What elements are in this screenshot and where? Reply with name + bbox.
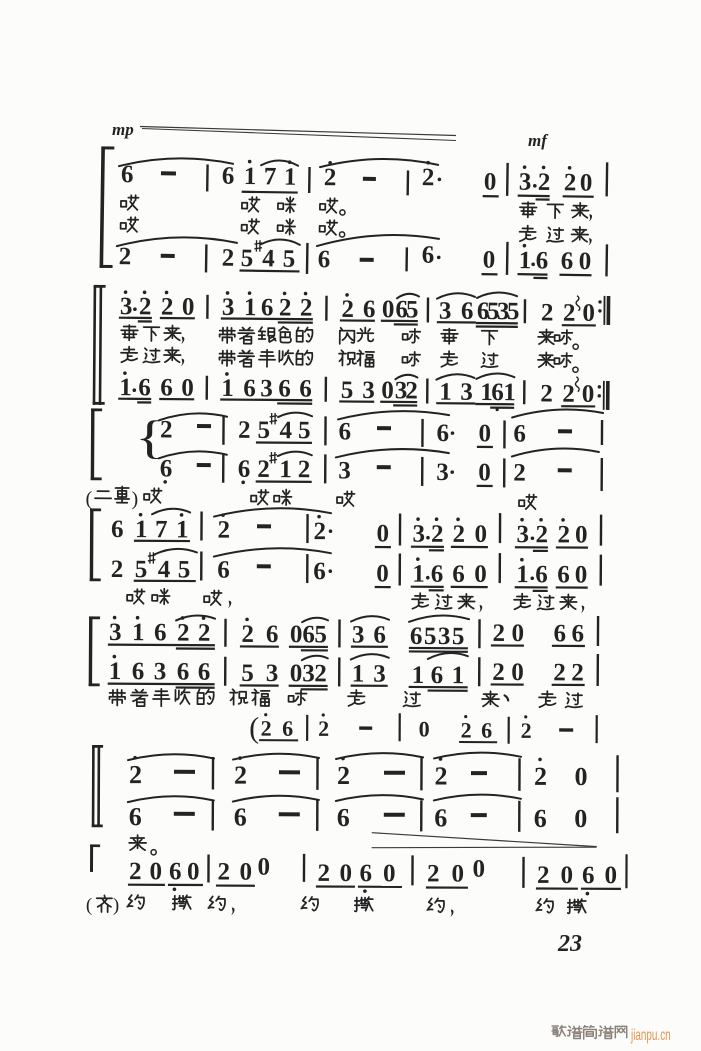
svg-text:6: 6 (410, 623, 423, 650)
svg-text:2: 2 (535, 521, 548, 548)
svg-text:2: 2 (492, 620, 505, 647)
svg-text:1: 1 (412, 561, 425, 588)
svg-text:2: 2 (217, 517, 230, 544)
svg-text:0: 0 (483, 247, 496, 274)
svg-text:2: 2 (534, 762, 547, 791)
svg-text:2: 2 (313, 518, 326, 545)
svg-text:2: 2 (234, 761, 247, 790)
svg-text:jianpu.cn: jianpu.cn (630, 1026, 670, 1044)
svg-text:1: 1 (135, 516, 148, 543)
svg-text:0: 0 (474, 561, 487, 588)
svg-text:6: 6 (198, 659, 211, 686)
svg-text:): ) (132, 488, 139, 510)
svg-text:6: 6 (111, 516, 124, 543)
svg-text:0: 0 (257, 854, 270, 881)
svg-text:5: 5 (507, 298, 520, 325)
svg-text:0: 0 (474, 521, 487, 548)
svg-text:2: 2 (129, 858, 142, 885)
svg-text:6: 6 (169, 858, 182, 885)
svg-text:4: 4 (279, 417, 292, 444)
svg-text:6: 6 (313, 558, 326, 585)
svg-text:0: 0 (182, 294, 195, 321)
svg-text:7: 7 (264, 163, 277, 190)
svg-text:5: 5 (406, 296, 419, 323)
svg-text:0: 0 (381, 377, 394, 404)
svg-text:6: 6 (160, 374, 173, 401)
svg-text:5: 5 (241, 660, 254, 687)
svg-text:2: 2 (337, 761, 350, 790)
svg-text:0: 0 (376, 520, 389, 547)
svg-text:2: 2 (198, 620, 211, 647)
svg-text:(: ( (249, 712, 259, 745)
svg-text:6: 6 (434, 803, 447, 832)
svg-text:23: 23 (557, 931, 582, 957)
svg-text:3: 3 (338, 457, 351, 484)
svg-text:5: 5 (341, 377, 354, 404)
svg-text:5: 5 (241, 245, 254, 272)
svg-text:4: 4 (262, 245, 275, 272)
svg-text:2: 2 (161, 293, 174, 320)
svg-text:3: 3 (120, 293, 133, 320)
svg-text:6: 6 (238, 456, 251, 483)
svg-text:2: 2 (431, 521, 444, 548)
svg-text:2: 2 (557, 521, 570, 548)
svg-text:0: 0 (511, 659, 524, 686)
svg-text:2: 2 (422, 164, 435, 191)
svg-text:3: 3 (460, 379, 473, 406)
svg-text:4: 4 (158, 556, 171, 583)
svg-text:3: 3 (412, 521, 425, 548)
svg-text:2: 2 (139, 293, 152, 320)
svg-text:6: 6 (461, 298, 474, 325)
svg-text:3: 3 (109, 619, 122, 646)
svg-text:6: 6 (582, 862, 595, 889)
svg-text:0: 0 (290, 660, 303, 687)
svg-text:1: 1 (279, 456, 292, 483)
svg-text:1: 1 (452, 662, 465, 689)
svg-text:2: 2 (405, 377, 418, 404)
svg-text:0: 0 (604, 862, 617, 889)
svg-text:3: 3 (362, 377, 375, 404)
svg-text:6: 6 (422, 242, 435, 269)
svg-text:0: 0 (511, 620, 524, 647)
svg-text:6: 6 (282, 716, 293, 741)
svg-text:6: 6 (373, 622, 386, 649)
svg-text:6: 6 (222, 163, 235, 190)
svg-text:1: 1 (176, 516, 189, 543)
svg-text:6: 6 (317, 246, 330, 273)
svg-text:3: 3 (222, 294, 235, 321)
svg-text:0: 0 (575, 561, 588, 588)
svg-text:6: 6 (535, 247, 548, 274)
svg-text:0: 0 (574, 804, 587, 833)
svg-text:3: 3 (260, 375, 273, 402)
svg-text:6: 6 (513, 420, 526, 447)
svg-text:3: 3 (439, 298, 452, 325)
svg-text:3: 3 (154, 658, 167, 685)
svg-text:1: 1 (244, 163, 257, 190)
svg-text:0: 0 (560, 862, 573, 889)
svg-text:2: 2 (521, 718, 532, 743)
svg-text:2: 2 (119, 243, 132, 270)
svg-text:0: 0 (478, 459, 491, 486)
svg-text:6: 6 (452, 561, 465, 588)
svg-text:2: 2 (540, 380, 553, 407)
svg-text:1: 1 (412, 662, 425, 689)
svg-text:2: 2 (261, 716, 272, 741)
svg-text:6: 6 (431, 662, 444, 689)
svg-text:2: 2 (341, 296, 354, 323)
svg-text:5: 5 (452, 623, 465, 650)
svg-text:2: 2 (562, 381, 575, 408)
svg-text:0: 0 (149, 858, 162, 885)
svg-text:2: 2 (513, 459, 526, 486)
svg-text:6: 6 (431, 561, 444, 588)
svg-text:7: 7 (155, 516, 168, 543)
svg-text:0: 0 (382, 296, 395, 323)
svg-text:): ) (113, 895, 119, 916)
svg-text:5: 5 (298, 417, 311, 444)
svg-text:6: 6 (491, 379, 504, 406)
svg-text:6: 6 (154, 619, 167, 646)
svg-text:2: 2 (317, 860, 330, 887)
svg-text:3: 3 (352, 622, 365, 649)
svg-text:2: 2 (222, 245, 235, 272)
svg-text:1: 1 (352, 661, 365, 688)
svg-text:1: 1 (132, 619, 145, 646)
svg-text:1: 1 (119, 374, 132, 401)
svg-text:1: 1 (244, 294, 257, 321)
svg-text:0: 0 (451, 861, 464, 888)
svg-text:6: 6 (337, 803, 350, 832)
svg-text:2: 2 (257, 456, 270, 483)
svg-text:2: 2 (279, 294, 292, 321)
svg-text:1: 1 (439, 379, 452, 406)
svg-text:1: 1 (284, 164, 297, 191)
svg-text:3: 3 (266, 660, 279, 687)
svg-text:0: 0 (575, 521, 588, 548)
svg-text:2: 2 (563, 300, 576, 327)
svg-text:6: 6 (217, 557, 230, 584)
svg-text:0: 0 (339, 860, 352, 887)
svg-text:2: 2 (241, 621, 254, 648)
svg-text:2: 2 (217, 858, 230, 885)
svg-text:6: 6 (234, 803, 247, 832)
svg-text:1: 1 (503, 379, 516, 406)
svg-text:2: 2 (314, 660, 327, 687)
svg-text:3: 3 (302, 660, 315, 687)
svg-text:2: 2 (564, 169, 577, 196)
svg-text:2: 2 (238, 417, 251, 444)
svg-text:6: 6 (560, 248, 573, 275)
svg-text:1: 1 (516, 561, 529, 588)
svg-text:6: 6 (299, 376, 312, 403)
svg-text:2: 2 (571, 659, 584, 686)
svg-text:2: 2 (129, 760, 142, 789)
svg-text:0: 0 (574, 762, 587, 791)
svg-text:5: 5 (135, 556, 148, 583)
svg-text:6: 6 (278, 375, 291, 402)
svg-text:2: 2 (298, 456, 311, 483)
svg-text:0: 0 (376, 560, 389, 587)
svg-text:6: 6 (359, 860, 372, 887)
svg-text:6: 6 (138, 374, 151, 401)
svg-text:6: 6 (481, 718, 492, 743)
svg-text:5: 5 (282, 246, 295, 273)
svg-text:2: 2 (553, 659, 566, 686)
svg-text:6: 6 (436, 420, 449, 447)
svg-text:0: 0 (187, 858, 200, 885)
svg-text:6: 6 (177, 658, 190, 685)
svg-text:0: 0 (181, 375, 194, 402)
svg-text:2: 2 (541, 299, 554, 326)
svg-text:0: 0 (580, 169, 593, 196)
svg-text:3: 3 (519, 169, 532, 196)
svg-text:2: 2 (177, 619, 190, 646)
svg-text:2: 2 (461, 718, 472, 743)
svg-text:0: 0 (472, 856, 485, 883)
svg-text:2: 2 (538, 169, 551, 196)
svg-text:6: 6 (534, 804, 547, 833)
svg-text:3: 3 (373, 661, 386, 688)
svg-text:6: 6 (363, 296, 376, 323)
svg-text:6: 6 (160, 455, 173, 482)
svg-text:0: 0 (419, 716, 430, 741)
svg-text:6: 6 (243, 375, 256, 402)
svg-text:3: 3 (438, 623, 451, 650)
svg-text:0: 0 (582, 300, 595, 327)
svg-text:0: 0 (578, 248, 591, 275)
svg-text:2: 2 (111, 556, 124, 583)
svg-text:6: 6 (571, 620, 584, 647)
svg-text:1: 1 (109, 658, 122, 685)
svg-text:0: 0 (484, 169, 497, 196)
svg-text:6: 6 (266, 621, 279, 648)
svg-text:mp: mp (112, 120, 134, 139)
svg-text:6: 6 (302, 621, 315, 648)
svg-text:(: ( (86, 895, 92, 916)
svg-text:1: 1 (519, 247, 532, 274)
svg-text:5: 5 (314, 621, 327, 648)
svg-text:mf: mf (528, 131, 549, 150)
svg-text:6: 6 (553, 620, 566, 647)
svg-text:6: 6 (132, 658, 145, 685)
svg-text:2: 2 (452, 521, 465, 548)
svg-text:6: 6 (557, 561, 570, 588)
svg-text:5: 5 (178, 556, 191, 583)
svg-text:2: 2 (537, 862, 550, 889)
svg-text:6: 6 (535, 561, 548, 588)
svg-text:0: 0 (239, 859, 252, 886)
svg-text:0: 0 (478, 420, 491, 447)
svg-text:(: ( (86, 488, 93, 510)
svg-text:6: 6 (129, 802, 142, 831)
svg-text:6: 6 (261, 294, 274, 321)
svg-text:3: 3 (516, 521, 529, 548)
svg-text:6: 6 (338, 418, 351, 445)
svg-text:5: 5 (257, 417, 270, 444)
svg-text:2: 2 (427, 860, 440, 887)
svg-text:2: 2 (300, 295, 313, 322)
svg-text:5: 5 (424, 623, 437, 650)
svg-text:0: 0 (582, 381, 595, 408)
svg-text:0: 0 (383, 860, 396, 887)
svg-text:2: 2 (318, 716, 329, 741)
svg-text:2: 2 (324, 164, 337, 191)
svg-text:1: 1 (221, 375, 234, 402)
svg-text:0: 0 (290, 621, 303, 648)
svg-text:2: 2 (492, 659, 505, 686)
svg-text:2: 2 (434, 761, 447, 790)
svg-text:3: 3 (436, 459, 449, 486)
